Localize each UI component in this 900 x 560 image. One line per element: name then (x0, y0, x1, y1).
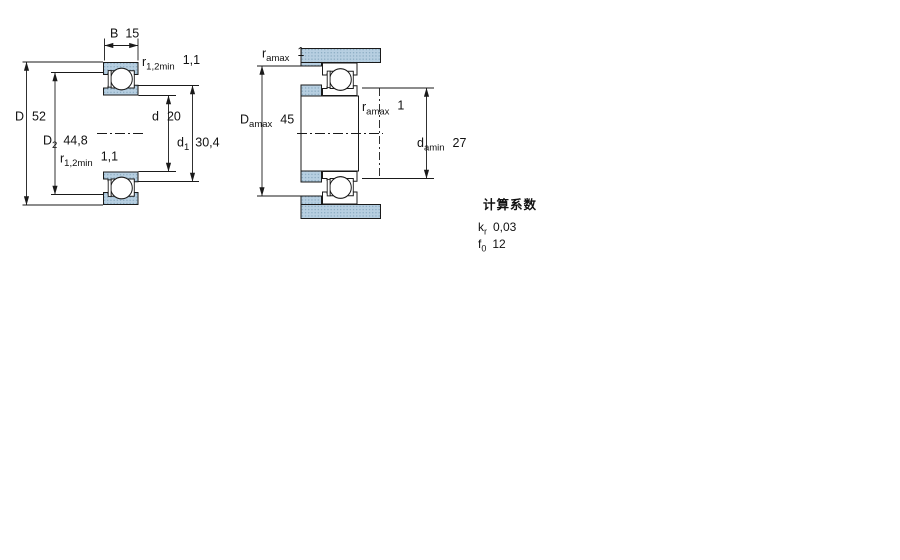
housing-strip-top (301, 49, 381, 63)
bearing-diagrams: B15 r1,2min1,1 D52 D244,8 r1,2min1,1 d20… (0, 0, 660, 300)
dim-label-B: B15 (110, 27, 139, 41)
housing-shoulder-bottom (301, 196, 322, 205)
factors-title: 计算系数 (483, 194, 537, 213)
dim-label-D: D52 (15, 110, 46, 124)
bearing-drawing-canvas: B15 r1,2min1,1 D52 D244,8 r1,2min1,1 d20… (0, 0, 900, 560)
factor-kr-sub: r (484, 226, 487, 236)
dim-label-d: d20 (152, 110, 181, 124)
fig2-bearing-section-bottom (323, 172, 358, 205)
figure-cross-section: B15 r1,2min1,1 D52 D244,8 r1,2min1,1 d20… (15, 27, 220, 206)
fig2-bearing-section-top (323, 63, 358, 96)
dim-label-ramax-top: ramax1 (262, 45, 304, 64)
housing-shoulder-top (301, 63, 322, 67)
dim-label-Damax: Damax45 (240, 113, 294, 131)
shaft-shoulder-bottom (301, 171, 322, 182)
dim-label-ramax-right: ramax1 (362, 99, 404, 118)
dim-label-r12min-bottom: r1,2min1,1 (60, 150, 118, 170)
factor-f0: f012 (478, 238, 537, 255)
factor-f0-value: 12 (492, 237, 505, 251)
dim-label-D2: D244,8 (43, 134, 88, 152)
factor-kr: kr0,03 (478, 221, 537, 238)
housing-strip-bottom (301, 205, 381, 219)
factor-f0-sub: 0 (481, 244, 486, 254)
dim-label-damin: damin27 (417, 136, 466, 154)
calculation-factors-block: 计算系数 kr0,03 f012 (478, 194, 537, 256)
factor-kr-value: 0,03 (493, 220, 516, 234)
dim-label-d1: d130,4 (177, 136, 220, 154)
fig1-bearing-section-bottom (104, 172, 139, 205)
shaft-shoulder-top (301, 85, 322, 96)
fig1-bearing-section-top (104, 63, 139, 96)
dim-label-r12min-top: r1,2min1,1 (142, 53, 200, 73)
figure-abutment: ramax1 Damax45 ramax1 damin27 (240, 45, 466, 219)
